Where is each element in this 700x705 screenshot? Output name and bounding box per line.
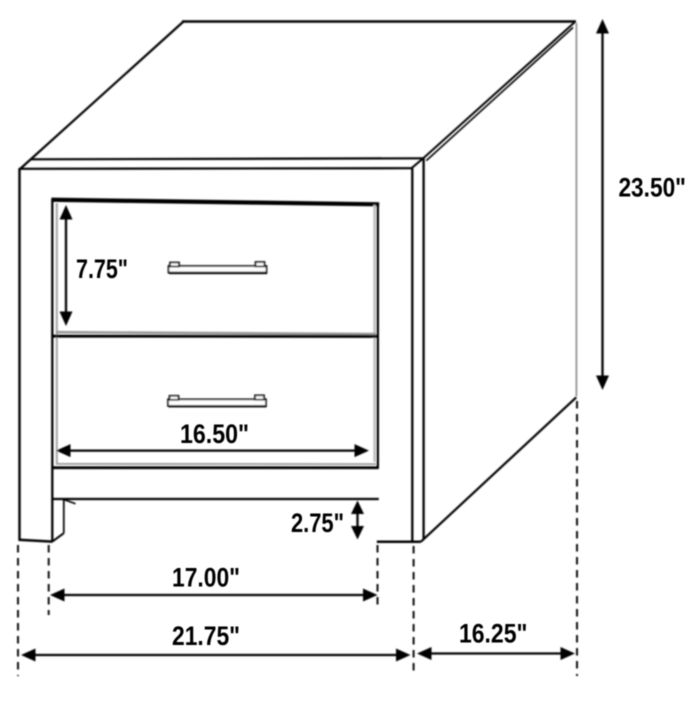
svg-text:16.25": 16.25" [459, 619, 528, 649]
svg-text:2.75": 2.75" [291, 508, 344, 538]
svg-text:23.50": 23.50" [618, 172, 686, 202]
svg-text:21.75": 21.75" [172, 621, 240, 651]
svg-text:16.50": 16.50" [180, 419, 249, 449]
svg-text:17.00": 17.00" [172, 562, 240, 592]
svg-text:7.75": 7.75" [76, 254, 128, 284]
